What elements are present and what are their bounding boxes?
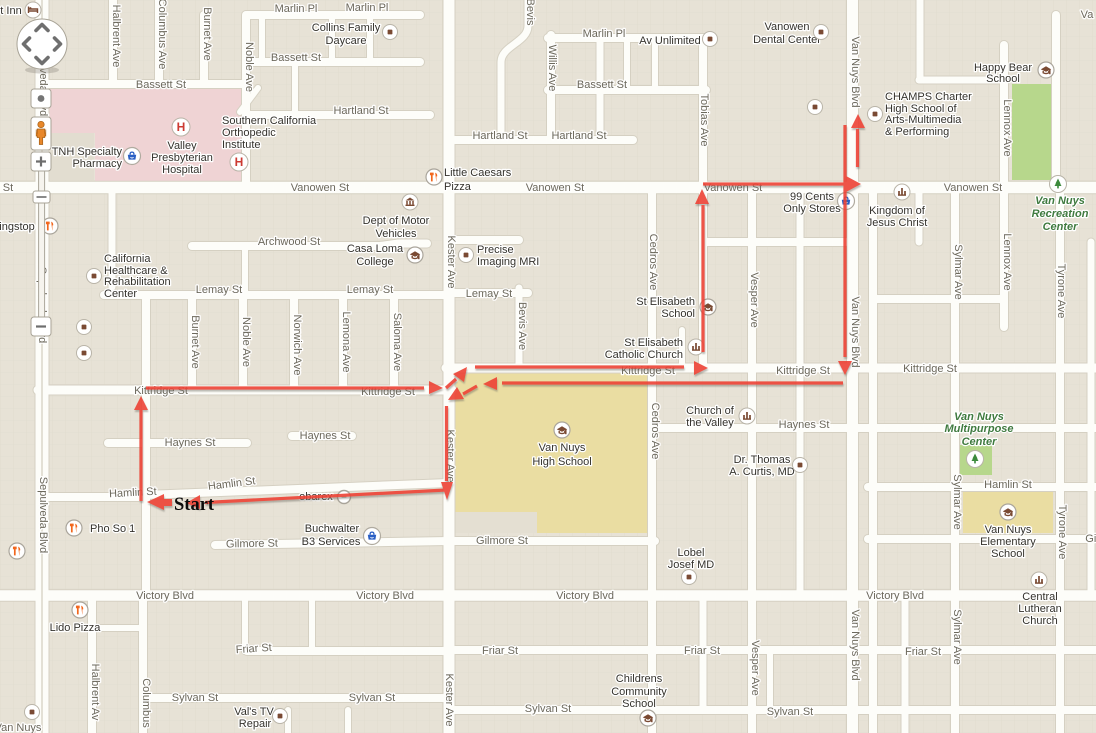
svg-text:Kingdom of: Kingdom of [869, 205, 926, 217]
svg-text:St: St [3, 182, 13, 194]
svg-text:Sepulveda Blvd: Sepulveda Blvd [37, 477, 49, 553]
svg-text:Lemona Ave: Lemona Ave [340, 312, 352, 373]
svg-text:Gil: Gil [1085, 533, 1096, 545]
svg-text:Presbyterian: Presbyterian [151, 152, 213, 164]
svg-text:Haynes St: Haynes St [165, 437, 216, 449]
svg-text:Gilmore St: Gilmore St [476, 535, 528, 547]
svg-text:Marlin Pl: Marlin Pl [583, 28, 626, 40]
svg-text:Cedros Ave: Cedros Ave [647, 234, 659, 291]
svg-text:Kittridge St: Kittridge St [776, 365, 830, 377]
svg-text:Rehabilitation: Rehabilitation [104, 276, 171, 288]
svg-text:Casa Loma: Casa Loma [347, 243, 404, 255]
svg-text:H: H [177, 120, 186, 134]
svg-text:Burnet Ave: Burnet Ave [189, 315, 201, 369]
svg-text:Multipurpose: Multipurpose [944, 423, 1013, 435]
svg-text:Van Nuys: Van Nuys [1035, 195, 1085, 207]
svg-text:Vanowen St: Vanowen St [944, 182, 1003, 194]
svg-text:Columbus Ave: Columbus Ave [156, 0, 168, 69]
svg-text:Friar St: Friar St [482, 645, 518, 657]
svg-text:Sylvan St: Sylvan St [172, 692, 218, 704]
svg-text:Hospital: Hospital [162, 164, 202, 176]
svg-text:Cedros Ave: Cedros Ave [649, 403, 661, 460]
svg-text:Columbus: Columbus [140, 678, 152, 728]
svg-text:Lido Pizza: Lido Pizza [50, 622, 102, 634]
svg-text:Bevis Ave: Bevis Ave [516, 302, 528, 350]
svg-text:Dr. Thomas: Dr. Thomas [734, 454, 791, 466]
svg-text:Tyrone Ave: Tyrone Ave [1056, 505, 1068, 560]
svg-text:School: School [622, 698, 656, 710]
svg-text:Hamlin St: Hamlin St [109, 486, 157, 500]
svg-text:Church of: Church of [686, 405, 735, 417]
svg-text:Halbrent Ave: Halbrent Ave [110, 5, 122, 68]
svg-text:Sylvan St: Sylvan St [767, 706, 813, 718]
svg-text:Van Nuys: Van Nuys [954, 411, 1004, 423]
svg-text:Community: Community [611, 686, 667, 698]
svg-text:School: School [986, 73, 1020, 85]
svg-text:Jesus Christ: Jesus Christ [867, 217, 928, 229]
svg-text:Imaging MRI: Imaging MRI [477, 256, 539, 268]
svg-text:Va: Va [1081, 9, 1095, 21]
svg-text:Pho So 1: Pho So 1 [90, 523, 135, 535]
svg-text:Southern California: Southern California [222, 115, 317, 127]
svg-text:Hartland St: Hartland St [333, 105, 388, 117]
svg-text:Sylmar Ave: Sylmar Ave [952, 244, 964, 299]
svg-text:Tyrone Ave: Tyrone Ave [1055, 264, 1067, 319]
svg-text:Church: Church [1022, 615, 1057, 627]
svg-text:Av Unlimited: Av Unlimited [639, 35, 701, 47]
svg-text:Bassett St: Bassett St [271, 52, 321, 64]
svg-text:School: School [661, 308, 695, 320]
svg-text:Noble Ave: Noble Ave [240, 317, 252, 367]
svg-text:Lobel: Lobel [678, 547, 705, 559]
svg-text:Lemay St: Lemay St [466, 288, 512, 300]
svg-text:Hartland St: Hartland St [472, 130, 527, 142]
svg-text:Buchwalter: Buchwalter [305, 523, 360, 535]
svg-text:Institute: Institute [222, 139, 261, 151]
svg-text:St Elisabeth: St Elisabeth [636, 296, 695, 308]
svg-text:Van Nuys Blvd: Van Nuys Blvd [849, 296, 861, 367]
svg-text:Van Nuys: Van Nuys [0, 722, 42, 733]
svg-text:Friar St: Friar St [905, 646, 941, 658]
svg-text:Valley: Valley [167, 140, 197, 152]
svg-text:Vanowen St: Vanowen St [526, 182, 585, 194]
svg-text:Victory Blvd: Victory Blvd [866, 590, 924, 602]
svg-text:Gilmore St: Gilmore St [226, 538, 278, 551]
svg-text:Noble Ave: Noble Ave [243, 42, 255, 92]
svg-text:& Performing: & Performing [885, 126, 949, 138]
svg-text:Lennox Ave: Lennox Ave [1001, 233, 1013, 290]
svg-text:99 Cents: 99 Cents [790, 191, 835, 203]
svg-text:Lemay St: Lemay St [196, 284, 242, 296]
svg-text:Dept of Motor: Dept of Motor [363, 215, 430, 227]
svg-text:Willis Ave: Willis Ave [546, 45, 558, 92]
svg-text:St Elisabeth: St Elisabeth [624, 337, 683, 349]
svg-text:Kester Ave: Kester Ave [445, 236, 457, 289]
svg-text:Center: Center [104, 288, 137, 300]
svg-text:Burnet Ave: Burnet Ave [201, 7, 213, 61]
svg-text:Dental Center: Dental Center [753, 34, 821, 46]
svg-text:Arts-Multimedia: Arts-Multimedia [885, 114, 962, 126]
svg-text:Elementary: Elementary [980, 536, 1036, 548]
svg-text:Collins Family: Collins Family [312, 22, 381, 34]
svg-text:Victory Blvd: Victory Blvd [356, 590, 414, 602]
svg-text:CHAMPS Charter: CHAMPS Charter [885, 91, 972, 103]
svg-text:Van Nuys Blvd: Van Nuys Blvd [849, 36, 861, 107]
svg-text:ingstop: ingstop [0, 221, 35, 233]
svg-text:Only Stores: Only Stores [783, 203, 841, 215]
svg-text:Sylmar Ave: Sylmar Ave [951, 474, 963, 529]
svg-text:Center: Center [1043, 221, 1079, 233]
svg-text:Haynes St: Haynes St [300, 430, 351, 442]
svg-text:Vanowen St: Vanowen St [291, 182, 350, 194]
svg-text:Pizza: Pizza [444, 181, 472, 193]
svg-text:High School: High School [532, 456, 591, 468]
svg-text:Hartland St: Hartland St [551, 130, 606, 142]
svg-text:Archwood St: Archwood St [258, 236, 320, 248]
svg-text:Victory Blvd: Victory Blvd [136, 590, 194, 602]
svg-text:Pharmacy: Pharmacy [72, 158, 122, 170]
svg-text:t Inn: t Inn [0, 5, 21, 17]
svg-text:Marlin Pl: Marlin Pl [346, 2, 389, 14]
svg-text:Vesper Ave: Vesper Ave [748, 272, 760, 327]
svg-text:Vanowen: Vanowen [764, 21, 809, 33]
svg-text:Lemay St: Lemay St [347, 284, 393, 296]
svg-text:Van Nuys Blvd: Van Nuys Blvd [849, 609, 861, 680]
svg-text:the Valley: the Valley [686, 417, 734, 429]
svg-text:Tobias Ave: Tobias Ave [698, 93, 710, 146]
svg-text:Saloma Ave: Saloma Ave [391, 313, 403, 372]
svg-text:Center: Center [962, 436, 998, 448]
svg-text:Catholic Church: Catholic Church [605, 349, 683, 361]
svg-text:Repair: Repair [239, 718, 272, 730]
svg-text:Sylvan St: Sylvan St [349, 692, 395, 704]
svg-text:Start: Start [174, 495, 215, 515]
svg-text:Central: Central [1022, 591, 1057, 603]
svg-text:Bassett St: Bassett St [136, 79, 186, 91]
svg-text:College: College [356, 256, 393, 268]
svg-text:Sylmar Ave: Sylmar Ave [951, 609, 963, 664]
svg-text:Recreation: Recreation [1032, 208, 1089, 220]
svg-text:Bassett St: Bassett St [577, 79, 627, 91]
svg-text:School: School [991, 548, 1025, 560]
svg-text:Daycare: Daycare [326, 35, 367, 47]
svg-text:A. Curtis, MD: A. Curtis, MD [729, 466, 794, 478]
svg-text:H: H [235, 155, 244, 169]
svg-text:B3 Services: B3 Services [302, 536, 361, 548]
svg-text:Vesper Ave: Vesper Ave [749, 640, 761, 695]
svg-text:Val's TV: Val's TV [234, 706, 274, 718]
svg-text:Kittridge St: Kittridge St [903, 363, 957, 375]
svg-text:Kester Ave: Kester Ave [443, 674, 455, 727]
svg-text:Vehicles: Vehicles [376, 228, 417, 240]
svg-text:Friar St: Friar St [684, 645, 720, 657]
svg-text:Bevis: Bevis [524, 0, 536, 26]
svg-text:Norwich Ave: Norwich Ave [291, 315, 303, 376]
svg-text:Friar St: Friar St [235, 642, 272, 656]
svg-text:Josef MD: Josef MD [668, 559, 715, 571]
svg-text:Little Caesars: Little Caesars [444, 167, 512, 179]
svg-text:California: California [104, 253, 151, 265]
svg-text:Victory Blvd: Victory Blvd [556, 590, 614, 602]
svg-text:Orthopedic: Orthopedic [222, 127, 276, 139]
svg-text:Childrens: Childrens [616, 673, 663, 685]
svg-text:Lennox Ave: Lennox Ave [1001, 99, 1013, 156]
svg-text:Van Nuys: Van Nuys [539, 442, 586, 454]
svg-text:Hamlin St: Hamlin St [984, 479, 1032, 491]
svg-text:Precise: Precise [477, 244, 514, 256]
svg-text:TNH Specialty: TNH Specialty [52, 146, 123, 158]
svg-text:Sylvan St: Sylvan St [525, 703, 571, 715]
svg-text:Marlin Pl: Marlin Pl [275, 3, 318, 15]
svg-text:Haynes St: Haynes St [779, 419, 830, 431]
svg-text:Van Nuys: Van Nuys [985, 524, 1032, 536]
svg-text:Halbrent Av: Halbrent Av [89, 664, 101, 721]
svg-text:Lutheran: Lutheran [1018, 603, 1061, 615]
